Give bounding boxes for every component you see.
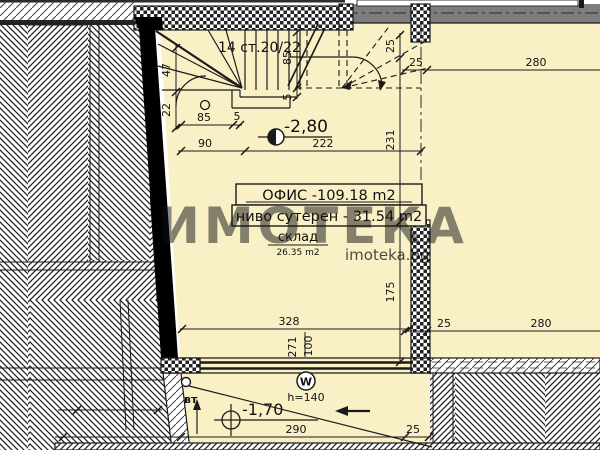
dim-90: 90 (198, 137, 212, 150)
dim-100: 100 (302, 336, 315, 357)
dim-25-bottom: 25 (406, 423, 420, 436)
floor-plan-canvas: 14 ст.20/22 -2,80 ОФИС -109.18 m2 ниво с… (0, 0, 600, 450)
level-value: -2,80 (284, 117, 328, 137)
column (339, 4, 353, 30)
hatch-band (30, 300, 172, 450)
dim-5-mid: 5 (281, 94, 294, 101)
door-pivot (182, 378, 191, 387)
column (161, 358, 200, 373)
watermark-small: imoteka.bg (345, 246, 430, 264)
slab-band (430, 358, 600, 373)
dim-290: 290 (286, 423, 307, 436)
window-mark: W (300, 376, 312, 389)
column (411, 358, 430, 373)
dim-25-axis: 25 (384, 39, 397, 53)
dim-280-top: 280 (526, 56, 547, 69)
bottom-strip (55, 443, 600, 450)
dim-85-mid: 85 (281, 51, 294, 65)
newel-post (201, 101, 210, 110)
dim-280-mid: 280 (531, 317, 552, 330)
dim-271: 271 (286, 337, 299, 358)
watermark: ИМОТЕКА imoteka.bg (158, 197, 468, 264)
hatch-band (88, 25, 150, 260)
hatch-band (0, 25, 28, 450)
level-value: -1,70 (242, 400, 283, 419)
dim-85: 85 (197, 111, 211, 124)
dim-25-mid: 25 (437, 317, 451, 330)
dim-222: 222 (313, 137, 334, 150)
floor-plan-drawing: 14 ст.20/22 -2,80 ОФИС -109.18 m2 ниво с… (0, 0, 600, 450)
dim-175: 175 (384, 282, 397, 303)
wall-opening (357, 0, 578, 6)
dim-25-top: 25 (409, 56, 423, 69)
window-sill-height: h=140 (287, 391, 324, 404)
dim-5: 5 (234, 110, 241, 123)
dim-47: 47 (160, 63, 173, 77)
masonry-wall-band (134, 6, 345, 30)
dim-231: 231 (384, 130, 397, 151)
street-strip (0, 3, 134, 21)
dim-22: 22 (160, 103, 173, 117)
dim-328: 328 (279, 315, 300, 328)
